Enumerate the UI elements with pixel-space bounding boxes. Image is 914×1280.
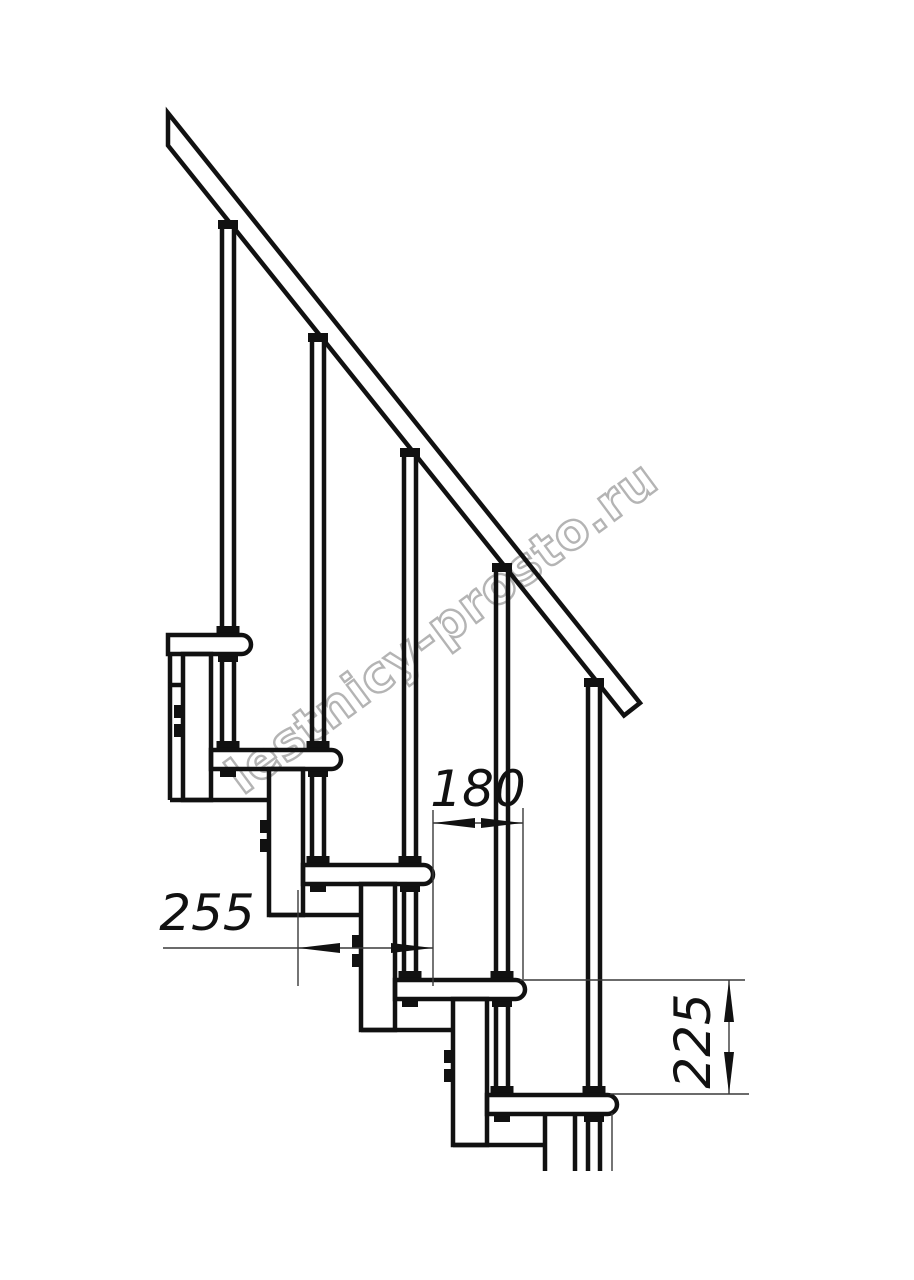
clamp-bolt <box>444 1069 453 1082</box>
baluster-top-collar <box>218 220 238 229</box>
arrowhead-left <box>433 818 475 828</box>
dimension-180: 180 <box>430 760 525 986</box>
arrowhead-right <box>391 943 433 953</box>
clamp-bolt <box>260 839 269 852</box>
step-3 <box>303 865 433 884</box>
dimension-255: 255 <box>159 884 433 986</box>
baluster-1 <box>217 220 240 635</box>
clamp-bolt <box>352 954 361 967</box>
technical-drawing-canvas: lestnicy-prosto.ru <box>0 0 914 1280</box>
staircase-side-elevation-drawing: lestnicy-prosto.ru <box>0 0 914 1280</box>
rod-2-3 <box>307 769 330 865</box>
dimension-180-label: 180 <box>430 760 525 818</box>
clamp-bolt <box>444 1050 453 1063</box>
baluster-5 <box>583 678 606 1095</box>
clamp-bolt <box>260 820 269 833</box>
support-column-4 <box>453 999 487 1145</box>
arrowhead-down <box>724 1052 734 1094</box>
dimension-225: 225 <box>520 980 749 1171</box>
support-column-3 <box>361 884 395 1030</box>
clamp-bolt <box>174 705 183 718</box>
arrowhead-up <box>724 980 734 1022</box>
clamp-bolt <box>174 724 183 737</box>
support-column-5-cut <box>545 1114 575 1171</box>
rod-4-5 <box>491 999 514 1095</box>
baluster-top-collar <box>308 333 328 342</box>
rod-5-cut <box>584 1114 604 1171</box>
arrowhead-right <box>481 818 523 828</box>
arrowhead-left <box>298 943 340 953</box>
clamp-bolt <box>352 935 361 948</box>
rod-3-4 <box>399 884 422 980</box>
step-1 <box>168 635 251 654</box>
step-4 <box>395 980 525 999</box>
dimension-225-label: 225 <box>664 993 722 1088</box>
dimension-255-label: 255 <box>159 884 254 942</box>
step-5 <box>487 1095 617 1114</box>
support-column-1 <box>183 654 211 800</box>
baluster-top-collar <box>584 678 604 687</box>
baluster-top-collar <box>400 448 420 457</box>
rod-1-2 <box>217 654 240 750</box>
baluster-top-collar <box>492 563 512 572</box>
